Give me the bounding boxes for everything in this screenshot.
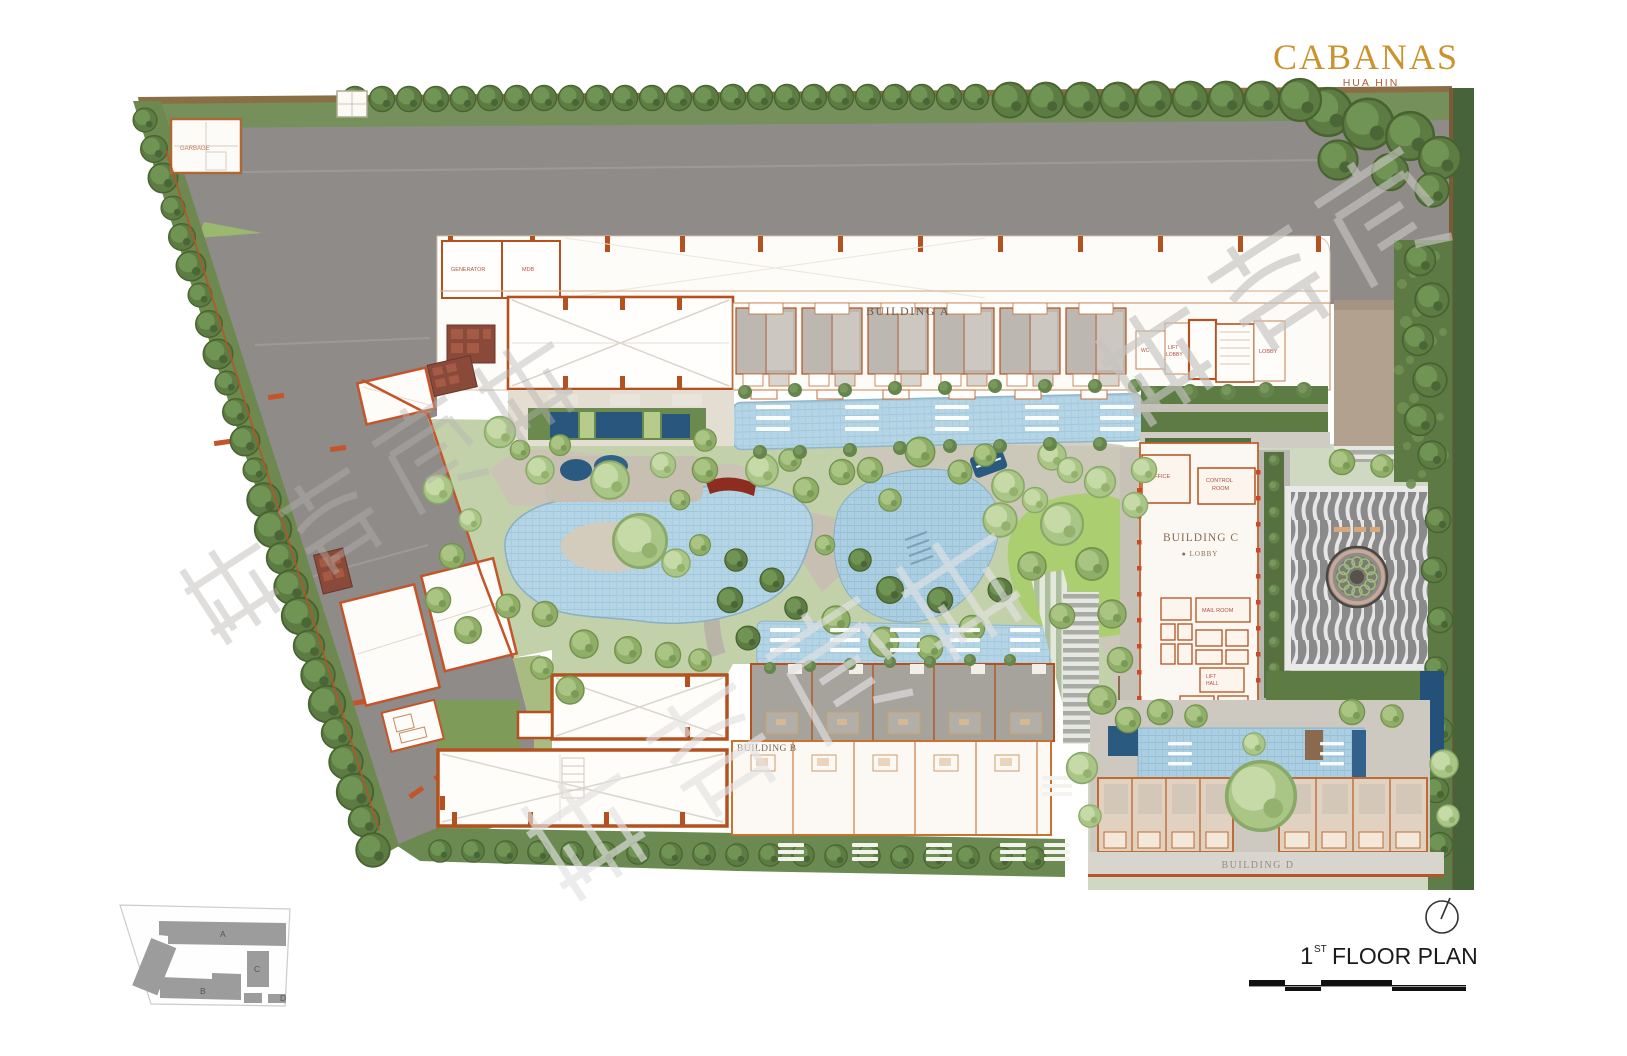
svg-text:HUA HIN: HUA HIN (1343, 77, 1400, 89)
svg-text:ST: ST (1314, 944, 1327, 955)
svg-text:BUILDING D: BUILDING D (1221, 860, 1294, 871)
svg-text:B: B (200, 986, 206, 996)
svg-text:CABANAS: CABANAS (1273, 37, 1459, 77)
svg-text:HALL: HALL (1206, 681, 1219, 687)
svg-text:ROOM: ROOM (1212, 486, 1230, 492)
svg-text:1: 1 (1300, 943, 1313, 970)
svg-text:LIFT: LIFT (1206, 674, 1216, 680)
svg-text:D: D (280, 993, 286, 1003)
svg-text:CONTROL: CONTROL (1206, 478, 1233, 484)
svg-text:● LOBBY: ● LOBBY (1182, 550, 1219, 558)
svg-text:MDB: MDB (522, 267, 535, 273)
svg-text:C: C (254, 964, 260, 974)
svg-text:BUILDING A: BUILDING A (866, 304, 950, 318)
svg-text:LIFT: LIFT (1168, 345, 1178, 351)
svg-text:GENERATOR: GENERATOR (451, 267, 485, 273)
svg-text:BUILDING C: BUILDING C (1163, 532, 1239, 544)
svg-text:LOBBY: LOBBY (1166, 352, 1183, 358)
svg-text:MAIL ROOM: MAIL ROOM (1202, 608, 1234, 614)
svg-text:A: A (220, 929, 226, 939)
svg-text:GARBAGE: GARBAGE (180, 146, 210, 152)
svg-text:FLOOR PLAN: FLOOR PLAN (1332, 943, 1478, 969)
